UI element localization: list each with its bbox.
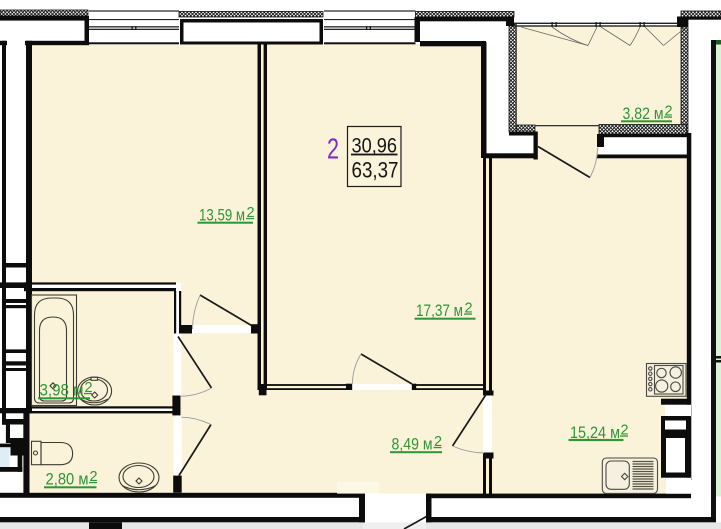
svg-text:3,82 м: 3,82 м xyxy=(623,104,664,123)
svg-text:2,80 м: 2,80 м xyxy=(46,470,89,489)
svg-text:2: 2 xyxy=(327,134,339,166)
svg-text:13,59 м: 13,59 м xyxy=(199,206,245,225)
svg-text:63,37: 63,37 xyxy=(352,158,399,183)
svg-text:8,49 м: 8,49 м xyxy=(392,435,433,454)
svg-text:17,37 м: 17,37 м xyxy=(416,301,463,320)
svg-text:3,98 м: 3,98 м xyxy=(40,381,84,400)
